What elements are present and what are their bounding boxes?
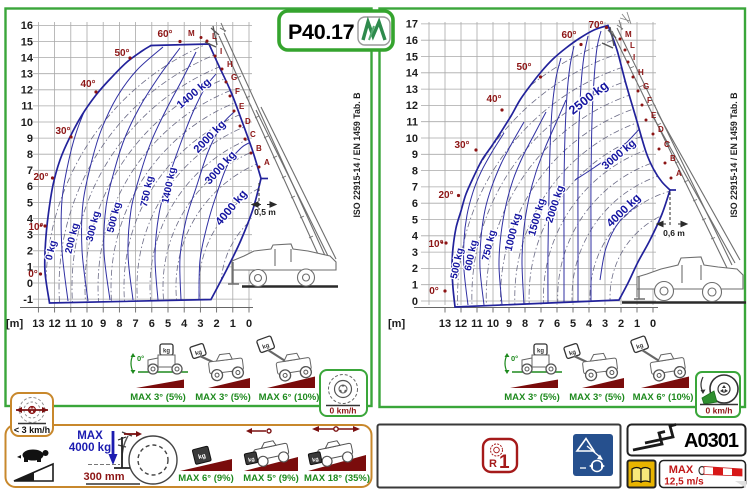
svg-text:6: 6 [27,181,33,193]
svg-text:10: 10 [406,133,418,145]
svg-text:16: 16 [21,20,33,32]
svg-text:7: 7 [133,318,139,330]
svg-text:50°: 50° [114,48,129,59]
svg-text:12: 12 [48,318,60,330]
svg-text:40°: 40° [80,79,95,90]
svg-text:E: E [239,102,245,111]
svg-text:I: I [633,53,635,62]
svg-text:13: 13 [32,318,44,330]
svg-text:MAX 3° (5%): MAX 3° (5%) [504,392,560,403]
svg-text:C: C [664,140,670,149]
svg-text:MAX 3° (5%): MAX 3° (5%) [130,392,186,403]
svg-text:2: 2 [618,318,624,330]
svg-text:12,5 m/s: 12,5 m/s [664,477,704,488]
svg-text:14: 14 [21,52,34,64]
svg-text:H: H [638,68,644,77]
svg-text:D: D [658,125,664,134]
svg-text:4: 4 [586,318,593,330]
svg-text:0°: 0° [28,269,38,280]
svg-text:D: D [245,117,251,126]
svg-text:M: M [625,30,632,39]
svg-text:MAX: MAX [669,464,694,476]
svg-text:8: 8 [522,318,528,330]
svg-text:17: 17 [406,19,418,31]
svg-text:11: 11 [65,318,77,330]
svg-text:P40.17: P40.17 [288,20,355,44]
svg-text:300 mm: 300 mm [84,471,125,483]
svg-text:12: 12 [455,318,467,330]
svg-text:ISO 22915-14 / EN 1459 Tab. B: ISO 22915-14 / EN 1459 Tab. B [729,92,739,217]
svg-text:9: 9 [27,133,33,145]
svg-text:9: 9 [506,318,512,330]
svg-text:7: 7 [27,165,33,177]
svg-text:9: 9 [100,318,106,330]
svg-text:10: 10 [487,318,499,330]
svg-text:0°: 0° [137,354,144,363]
svg-text:H: H [227,60,233,69]
svg-text:L: L [630,41,635,50]
svg-text:13: 13 [406,84,418,96]
svg-text:3: 3 [412,247,418,259]
svg-text:12: 12 [406,100,418,112]
svg-text:30°: 30° [454,140,469,151]
svg-text:E: E [651,111,657,120]
svg-text:12: 12 [21,85,33,97]
svg-text:F: F [235,87,240,96]
svg-text:50°: 50° [516,62,531,73]
svg-text:4: 4 [412,231,419,243]
svg-text:0,5 m: 0,5 m [254,207,276,217]
svg-text:MAX 3° (5%): MAX 3° (5%) [569,392,625,403]
svg-text:1: 1 [634,318,640,330]
svg-text:1: 1 [230,318,236,330]
svg-text:[m]: [m] [6,318,23,330]
svg-text:MAX 3° (5%): MAX 3° (5%) [195,392,251,403]
svg-text:[m]: [m] [388,318,405,330]
svg-text:5: 5 [570,318,576,330]
svg-text:0: 0 [246,318,252,330]
svg-text:MAX 5° (9%): MAX 5° (9%) [243,473,299,484]
svg-text:10°: 10° [28,222,43,233]
svg-text:B: B [670,154,676,163]
svg-text:5: 5 [27,197,33,209]
svg-text:7: 7 [412,182,418,194]
svg-text:4: 4 [181,318,188,330]
svg-text:7: 7 [538,318,544,330]
svg-text:ISO 22915-14 / EN 1459 Tab. B: ISO 22915-14 / EN 1459 Tab. B [352,92,362,217]
svg-text:14: 14 [406,68,419,80]
svg-text:10°: 10° [428,239,443,250]
svg-text:40°: 40° [486,94,501,105]
svg-text:3: 3 [197,318,203,330]
svg-text:15: 15 [406,51,418,63]
svg-text:0,6 m: 0,6 m [663,228,685,238]
svg-text:13: 13 [439,318,451,330]
svg-text:C: C [250,130,256,139]
svg-text:MAX 6° (10%): MAX 6° (10%) [633,392,694,403]
svg-text:A0301: A0301 [684,430,739,452]
svg-text:0: 0 [650,318,656,330]
svg-text:4000 kg: 4000 kg [69,442,111,454]
svg-text:F: F [647,96,652,105]
svg-text:0: 0 [412,296,418,308]
svg-text:8: 8 [412,165,418,177]
svg-text:70°: 70° [588,20,603,31]
svg-text:13: 13 [21,69,33,81]
svg-text:2: 2 [214,318,220,330]
svg-text:5: 5 [412,214,418,226]
svg-text:6: 6 [149,318,155,330]
svg-text:20°: 20° [33,172,48,183]
svg-text:0°: 0° [511,354,518,363]
svg-text:MAX 18° (35%): MAX 18° (35%) [304,473,370,484]
svg-text:< 3 km/h: < 3 km/h [14,425,50,435]
svg-text:9: 9 [412,149,418,161]
svg-text:8: 8 [116,318,122,330]
svg-text:R: R [489,458,497,470]
svg-text:0 km/h: 0 km/h [330,406,357,416]
svg-text:-1: -1 [23,294,33,306]
svg-text:kg: kg [537,349,544,355]
svg-text:M: M [188,29,195,38]
svg-text:0 km/h: 0 km/h [706,406,733,416]
svg-text:B: B [256,144,262,153]
svg-text:16: 16 [406,35,418,47]
svg-text:15: 15 [21,36,33,48]
svg-text:MAX 6° (10%): MAX 6° (10%) [259,392,320,403]
svg-text:0°: 0° [429,286,439,297]
svg-text:G: G [231,73,237,82]
svg-text:3: 3 [602,318,608,330]
svg-text:60°: 60° [561,30,576,41]
svg-text:11: 11 [406,117,418,129]
svg-text:MAX 6° (9%): MAX 6° (9%) [178,473,234,484]
svg-text:6: 6 [412,198,418,210]
svg-text:I: I [220,47,222,56]
svg-text:2: 2 [412,263,418,275]
svg-text:10: 10 [81,318,93,330]
svg-text:L: L [212,32,217,41]
svg-text:10: 10 [21,117,33,129]
svg-text:11: 11 [471,318,483,330]
svg-text:MAX: MAX [77,430,103,442]
svg-text:G: G [643,82,649,91]
svg-text:2: 2 [27,246,33,258]
svg-text:60°: 60° [157,29,172,40]
svg-text:30°: 30° [55,126,70,137]
svg-text:20°: 20° [438,190,453,201]
svg-text:11: 11 [21,101,33,113]
svg-text:5: 5 [165,318,171,330]
svg-text:1: 1 [412,280,418,292]
svg-text:6: 6 [554,318,560,330]
svg-text:1: 1 [499,452,510,473]
svg-text:A: A [264,158,270,167]
svg-text:A: A [676,169,682,178]
svg-text:8: 8 [27,149,33,161]
svg-text:kg: kg [163,349,170,355]
